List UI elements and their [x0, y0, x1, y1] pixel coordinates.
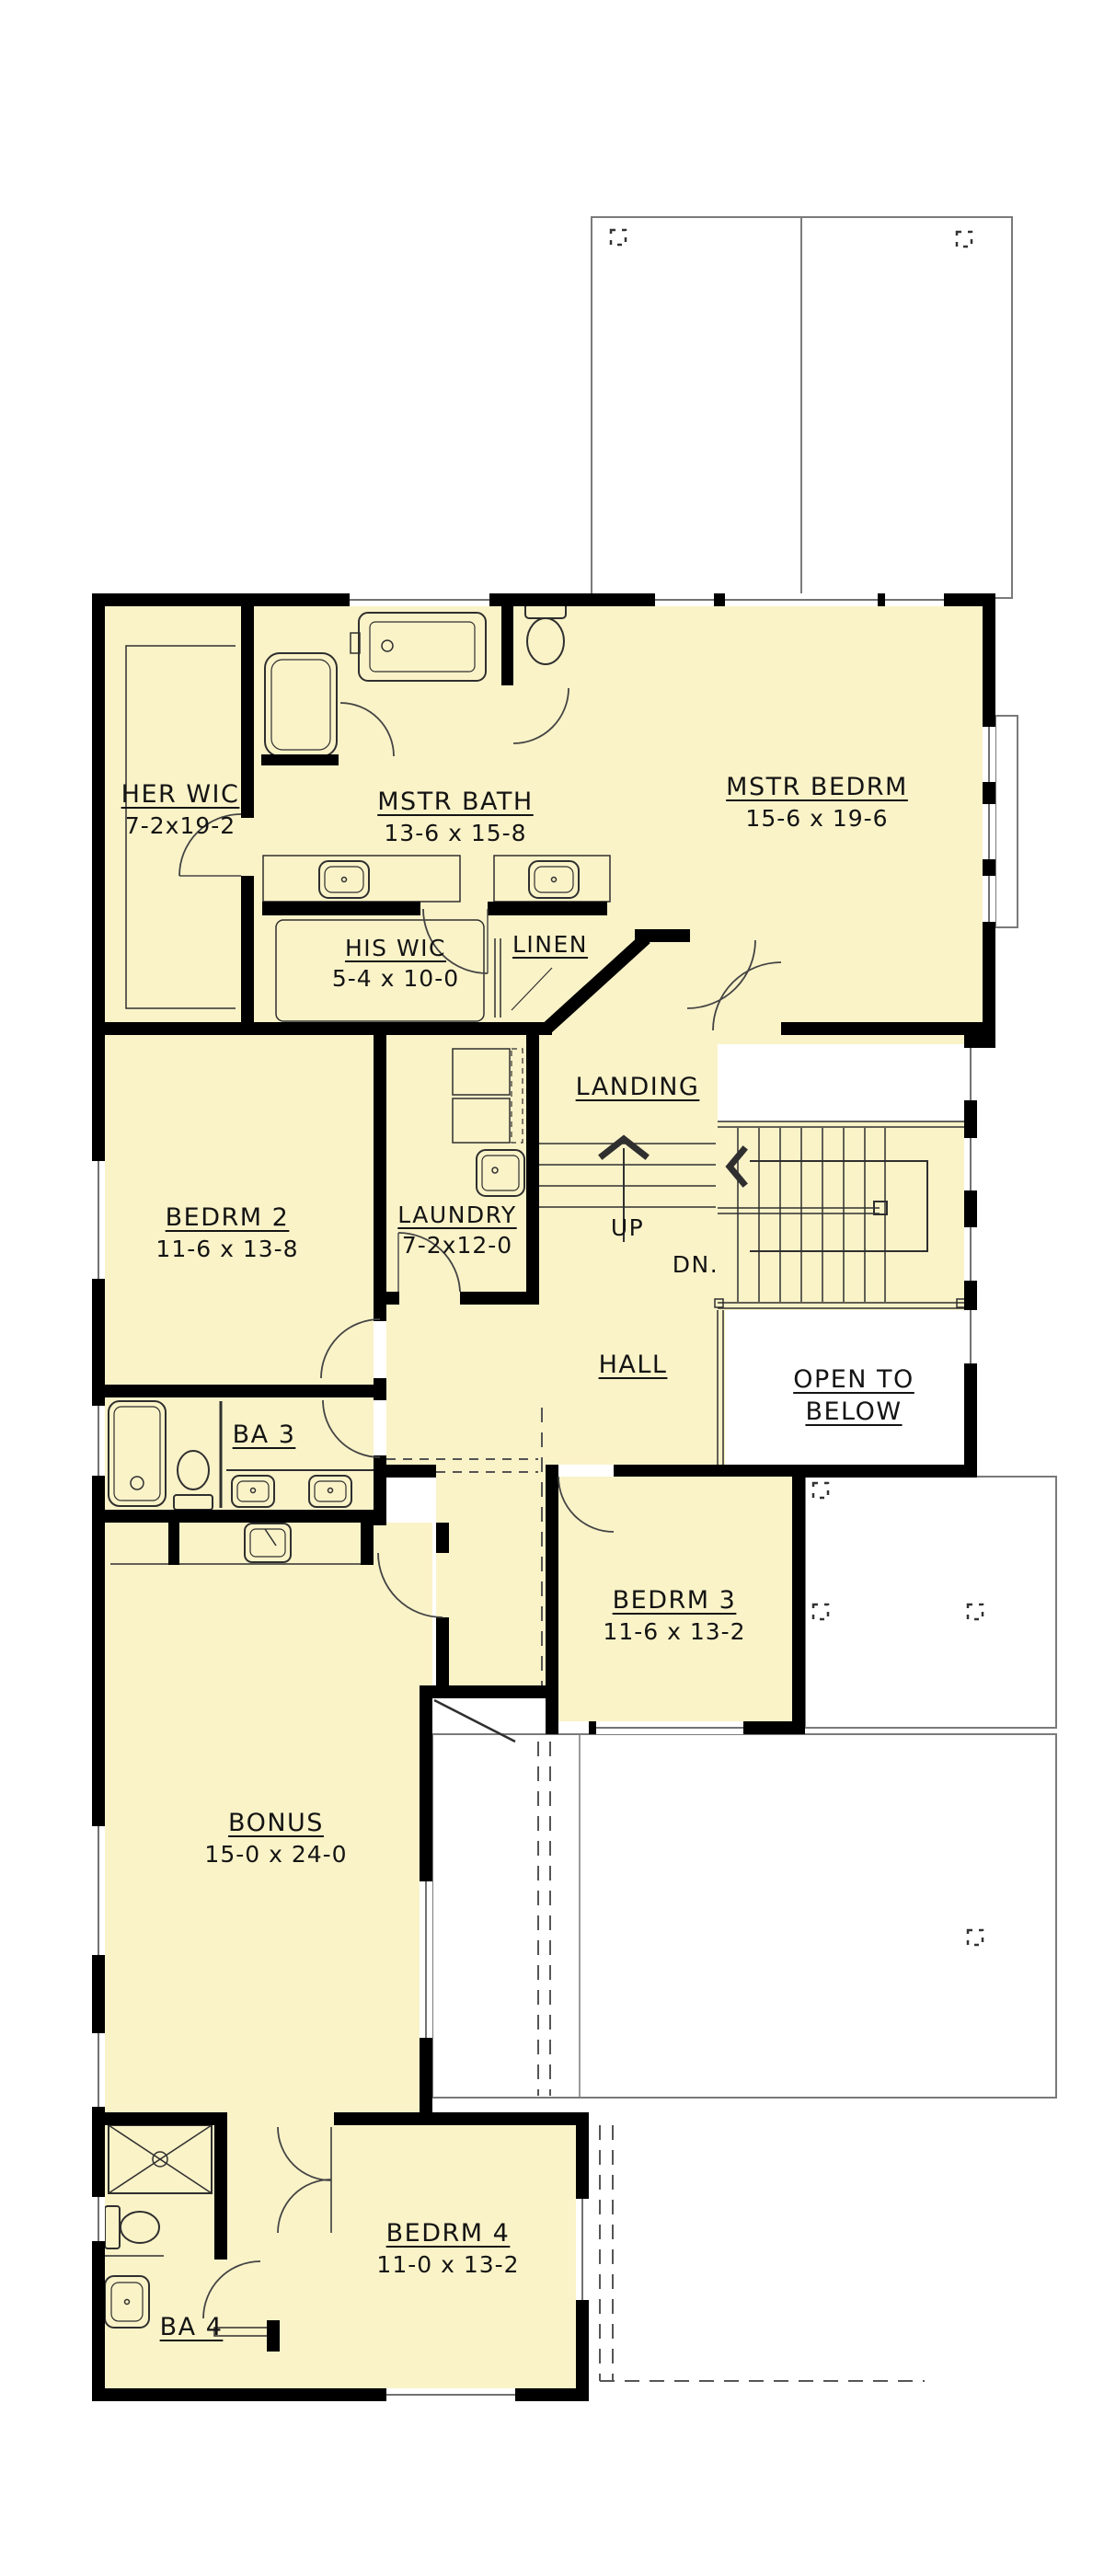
- room-label-open-to-below: OPEN TO BELOW: [771, 1363, 937, 1428]
- room-label-bonus: BONUS 15-0 x 24-0: [204, 1809, 347, 1868]
- bay-window-outline: [995, 716, 1018, 927]
- room-label-laundry: LAUNDRY 7-2x12-0: [397, 1202, 516, 1259]
- roof-below-outline: [432, 1734, 1056, 2098]
- room-label-her-wic: HER WIC 7-2x19-2: [121, 780, 240, 839]
- room-label-hall: HALL: [599, 1351, 668, 1379]
- room-label-bedrm2: BEDRM 2 11-6 x 13-8: [155, 1203, 298, 1262]
- room-label-bedrm3: BEDRM 3 11-6 x 13-2: [603, 1586, 745, 1645]
- deck-outline-upper: [805, 1477, 1056, 1728]
- room-label-mstr-bath: MSTR BATH 13-6 x 15-8: [377, 788, 533, 846]
- room-label-bedrm4: BEDRM 4 11-0 x 13-2: [376, 2219, 519, 2278]
- stair-label-down: DN.: [673, 1251, 719, 1278]
- room-label-ba3: BA 3: [233, 1420, 296, 1449]
- stair-label-up: UP: [611, 1214, 644, 1241]
- room-label-ba4: BA 4: [160, 2313, 224, 2341]
- room-label-landing: LANDING: [576, 1073, 700, 1101]
- floor-plan-canvas: HER WIC 7-2x19-2 MSTR BATH 13-6 x 15-8 M…: [0, 0, 1104, 2576]
- floor-plan-drawing: [0, 0, 1104, 2576]
- room-label-linen: LINEN: [512, 931, 588, 958]
- room-label-his-wic: HIS WIC 5-4 x 10-0: [332, 935, 459, 992]
- room-label-mstr-bedrm: MSTR BEDRM 15-6 x 19-6: [726, 773, 908, 832]
- stairwell-open-strip: [718, 1044, 964, 1121]
